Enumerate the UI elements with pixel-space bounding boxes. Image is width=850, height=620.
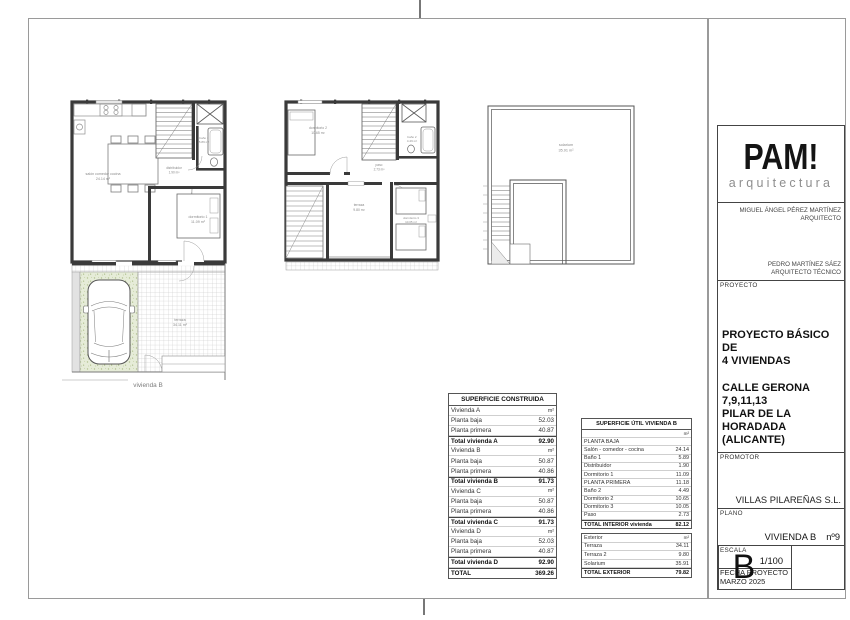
table-row: Baño 15.89 — [582, 455, 691, 463]
row-label: Planta primera — [451, 468, 491, 475]
table-row: Terraza34.11 — [582, 543, 691, 552]
table-row: Paso2.73 — [582, 512, 691, 520]
table-superficie-construida: SUPERFICIE CONSTRUIDA Vivienda Am²Planta… — [448, 393, 557, 579]
table-row: TOTAL EXTERIOR79.82 — [582, 568, 691, 577]
row-value: 40.86 — [539, 508, 554, 515]
row-label: Distribuidor — [584, 463, 611, 469]
row-value: 11.09 — [676, 472, 689, 478]
title-block: PAM! arquitectura MIGUEL ÁNGEL PÉREZ MAR… — [717, 125, 845, 590]
row-label: PLANTA PRIMERA — [584, 480, 630, 486]
logo-section: PAM! arquitectura — [718, 126, 844, 203]
pam-logo-subtitle: arquitectura — [718, 176, 844, 190]
table-row: Planta primera40.86 — [449, 507, 556, 517]
table-row: Planta primera40.87 — [449, 426, 556, 436]
table-row: PLANTA BAJA — [582, 438, 691, 446]
table-row: m² — [582, 430, 691, 438]
table-row: Distribuidor1.90 — [582, 463, 691, 471]
fold-mark-top — [419, 0, 421, 18]
row-label: Vivienda A — [451, 407, 480, 414]
table-util-exterior-body: Exteriorm²Terraza34.11Terraza 29.80Solar… — [582, 534, 691, 577]
table-superficie-util-exterior: Exteriorm²Terraza34.11Terraza 29.80Solar… — [581, 533, 692, 578]
promotor-value: VILLAS PILAREÑAS S.L. — [736, 495, 841, 505]
proyecto-section: PROYECTO PROYECTO BÁSICO DE 4 VIVIENDAS … — [718, 281, 844, 453]
table-row: Planta baja50.87 — [449, 456, 556, 466]
storage-x-box-first — [402, 104, 426, 122]
row-label: TOTAL — [451, 570, 471, 577]
row-value: 91.73 — [539, 519, 554, 526]
row-value: 50.87 — [539, 498, 554, 505]
table-construida-body: Vivienda Am²Planta baja52.03Planta prime… — [449, 406, 556, 578]
row-value: m² — [548, 408, 554, 414]
row-value: 2.73 — [679, 512, 690, 518]
row-label: Dormitorio 3 — [584, 504, 613, 510]
table-row: Dormitorio 210.65 — [582, 496, 691, 504]
table-row: TOTAL INTERIOR vivienda82.12 — [582, 520, 691, 528]
table-superficie-util-interior: SUPERFICIE ÚTIL VIVIENDA B m²PLANTA BAJA… — [581, 418, 692, 529]
label-paso: paso — [376, 163, 383, 167]
label-bano1-area: 5.89 m² — [199, 140, 209, 144]
storage-x-box — [197, 104, 223, 124]
table-row: Planta baja52.03 — [449, 416, 556, 426]
row-label: PLANTA BAJA — [584, 439, 619, 445]
pam-logo: PAM! — [728, 140, 834, 174]
project-address-line4: (ALICANTE) — [722, 434, 840, 447]
row-label: Baño 1 — [584, 455, 601, 461]
row-label: Dormitorio 1 — [584, 472, 613, 478]
row-label: Exterior — [584, 535, 603, 541]
table-util-interior-body: m²PLANTA BAJASalón - comedor - cocina24.… — [582, 430, 691, 528]
row-label: Planta primera — [451, 548, 491, 555]
row-value: 91.73 — [539, 478, 554, 485]
row-label: TOTAL EXTERIOR — [584, 570, 630, 576]
table-row: Planta primera40.86 — [449, 467, 556, 477]
label-dormitorio1: dormitorio 1 — [189, 215, 208, 219]
row-value: 52.03 — [539, 538, 554, 545]
table-row: Exteriorm² — [582, 534, 691, 543]
technical-architect-role: ARQUITECTO TÉCNICO — [768, 269, 841, 277]
drawing-sheet: salón comedor cocina 24.14 m² dormitorio… — [0, 0, 850, 620]
row-label: Dormitorio 2 — [584, 496, 613, 502]
row-value: 35.91 — [676, 561, 690, 567]
table-row: Total vivienda D92.90 — [449, 557, 556, 567]
row-value: 1.90 — [679, 463, 690, 469]
row-value: 9.80 — [679, 552, 690, 558]
car — [84, 280, 135, 364]
label-dormitorio3-area: 10.05 m² — [405, 220, 417, 224]
row-label: Total vivienda A — [451, 438, 498, 445]
plan-first-floor: dormitorio 2 10.65 m² baño 2 4.49 m² pas… — [278, 94, 446, 276]
row-label: Vivienda B — [451, 447, 480, 454]
row-label: Total vivienda C — [451, 519, 498, 526]
row-value: 50.87 — [539, 458, 554, 465]
label-terraza2: terraza — [354, 203, 365, 207]
row-value: 4.49 — [679, 488, 690, 494]
exterior-stairs — [286, 186, 323, 258]
proyecto-label: PROYECTO — [720, 282, 758, 289]
table-row: Planta primera40.87 — [449, 547, 556, 557]
label-solarium-area: 35.91 m² — [559, 149, 575, 153]
plan-solarium: solarium 35.91 m² — [478, 94, 644, 276]
row-label: Total vivienda D — [451, 559, 498, 566]
table-row: Vivienda Am² — [449, 406, 556, 416]
row-label: Vivienda D — [451, 528, 481, 535]
row-label: Planta baja — [451, 498, 482, 505]
row-label: Planta baja — [451, 538, 482, 545]
row-value: 40.87 — [539, 548, 554, 555]
row-value: m² — [684, 431, 689, 436]
row-value: 11.18 — [676, 480, 689, 486]
label-terraza: terraza — [174, 318, 185, 322]
project-address-line2: 7,9,11,13 — [722, 395, 840, 408]
table-row: Planta baja50.87 — [449, 497, 556, 507]
project-address: CALLE GERONA 7,9,11,13 PILAR DE LA HORAD… — [722, 382, 840, 447]
row-label: Vivienda C — [451, 488, 481, 495]
plano-label: PLANO — [720, 510, 743, 517]
row-label: Planta primera — [451, 508, 491, 515]
table-row: Dormitorio 111.09 — [582, 471, 691, 479]
project-title-line1: PROYECTO BÁSICO DE — [722, 329, 840, 355]
staircase — [156, 102, 195, 160]
row-value: 40.86 — [539, 468, 554, 475]
row-value: 10.65 — [676, 496, 690, 502]
label-solarium: solarium — [559, 143, 573, 147]
row-label: Terraza 2 — [584, 552, 606, 558]
plan-ground-floor-and-garden: salón comedor cocina 24.14 m² dormitorio… — [58, 94, 236, 390]
row-value: m² — [548, 529, 554, 535]
table-row: PLANTA PRIMERA11.18 — [582, 479, 691, 487]
row-label: Planta baja — [451, 417, 482, 424]
table-row: Total vivienda C91.73 — [449, 517, 556, 527]
table-util-title: SUPERFICIE ÚTIL VIVIENDA B — [582, 419, 691, 430]
label-terraza-area: 34.11 m² — [173, 323, 188, 327]
staircase-first — [362, 102, 399, 160]
first-floor-tile-band — [286, 262, 438, 270]
plano-section: PLANO VIVIENDA Bnº9 — [718, 509, 844, 546]
label-bano2-area: 4.49 m² — [407, 139, 417, 143]
architect-credit: MIGUEL ÁNGEL PÉREZ MARTÍNEZ ARQUITECTO — [739, 207, 841, 223]
row-value: 369.26 — [535, 570, 554, 577]
label-dormitorio1-area: 11.09 m² — [191, 220, 206, 224]
table-row: Total vivienda A92.90 — [449, 436, 556, 446]
row-label: Paso — [584, 512, 596, 518]
caption-vivienda-b: vivienda B — [133, 382, 163, 389]
row-label: Salón - comedor - cocina — [584, 447, 644, 453]
sheet-letter: B — [718, 546, 769, 589]
table-row: Planta baja52.03 — [449, 537, 556, 547]
row-label: Planta primera — [451, 427, 491, 434]
table-row: Baño 24.49 — [582, 487, 691, 495]
fold-mark-bottom — [423, 598, 425, 615]
row-value: 79.82 — [676, 570, 690, 576]
table-row: Solarium35.91 — [582, 560, 691, 569]
label-salon-area: 24.14 m² — [96, 177, 111, 181]
row-label: Baño 2 — [584, 488, 601, 494]
table-row: TOTAL369.26 — [449, 568, 556, 578]
row-value: m² — [548, 448, 554, 454]
plano-number: nº9 — [826, 532, 840, 542]
row-value: 82.12 — [676, 522, 690, 528]
label-terraza2-area: 9.80 m² — [353, 208, 365, 212]
table-row: Vivienda Dm² — [449, 527, 556, 537]
table-row: Salón - comedor - cocina24.14 — [582, 446, 691, 454]
promotor-section: PROMOTOR VILLAS PILAREÑAS S.L. — [718, 453, 844, 509]
row-value: m² — [684, 535, 689, 540]
label-distribuidor: distribuidor — [166, 166, 183, 170]
row-value: 24.14 — [676, 447, 690, 453]
garden-parking — [62, 262, 225, 380]
row-label: Solarium — [584, 561, 605, 567]
project-title: PROYECTO BÁSICO DE 4 VIVIENDAS — [722, 329, 840, 368]
architect-name: MIGUEL ÁNGEL PÉREZ MARTÍNEZ — [739, 207, 841, 215]
plano-name: VIVIENDA B — [765, 532, 817, 542]
label-salon: salón comedor cocina — [86, 172, 121, 176]
row-label: TOTAL INTERIOR vivienda — [584, 522, 652, 528]
dining-table — [108, 136, 158, 192]
table-row: Total vivienda B91.73 — [449, 477, 556, 487]
row-value: 10.05 — [676, 504, 690, 510]
project-address-line3: PILAR DE LA HORADADA — [722, 408, 840, 434]
label-distribuidor-area: 1.90 m² — [169, 171, 180, 175]
table-row: Vivienda Cm² — [449, 487, 556, 497]
row-value: 5.89 — [679, 455, 690, 461]
row-label: Total vivienda B — [451, 478, 498, 485]
row-value: 40.87 — [539, 427, 554, 434]
row-value: 92.90 — [539, 438, 554, 445]
room-labels-roof: solarium 35.91 m² — [559, 143, 575, 153]
row-value: m² — [548, 488, 554, 494]
project-title-line2: 4 VIVIENDAS — [722, 355, 840, 368]
row-label: Planta baja — [451, 458, 482, 465]
row-value: 34.11 — [676, 543, 689, 549]
table-construida-title: SUPERFICIE CONSTRUIDA — [449, 394, 556, 406]
label-paso-area: 2.73 m² — [374, 168, 385, 172]
technical-architect-name: PEDRO MARTÍNEZ SÁEZ — [768, 261, 841, 269]
project-address-line1: CALLE GERONA — [722, 382, 840, 395]
architects-section: MIGUEL ÁNGEL PÉREZ MARTÍNEZ ARQUITECTO P… — [718, 203, 844, 281]
table-row: Vivienda Bm² — [449, 446, 556, 456]
label-dormitorio2: dormitorio 2 — [309, 126, 327, 130]
architect-role: ARQUITECTO — [739, 215, 841, 223]
table-row: Dormitorio 310.05 — [582, 504, 691, 512]
technical-architect-credit: PEDRO MARTÍNEZ SÁEZ ARQUITECTO TÉCNICO — [768, 261, 841, 277]
plano-value: VIVIENDA Bnº9 — [765, 532, 840, 542]
row-label: Terraza — [584, 543, 602, 549]
promotor-label: PROMOTOR — [720, 454, 759, 461]
label-dormitorio2-area: 10.65 m² — [311, 131, 325, 135]
row-value: 92.90 — [539, 559, 554, 566]
table-row: Terraza 29.80 — [582, 551, 691, 560]
row-value: 52.03 — [539, 417, 554, 424]
titleblock-divider-line — [707, 18, 709, 598]
